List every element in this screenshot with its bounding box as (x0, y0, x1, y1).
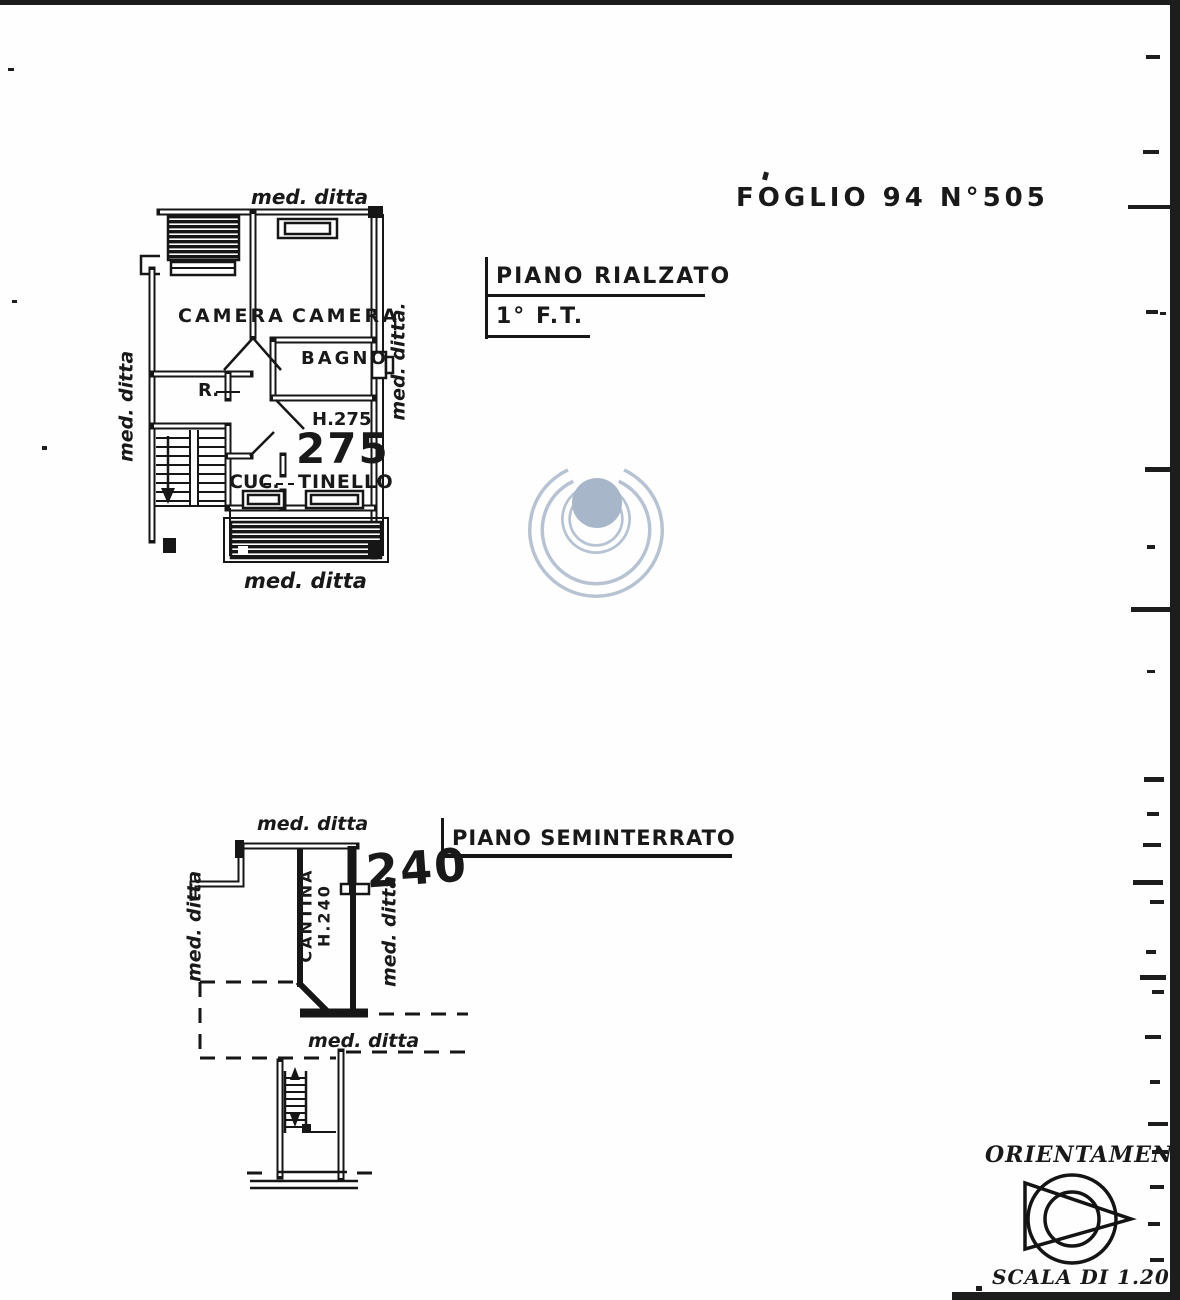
med-ditta-left-label: med. ditta (117, 346, 138, 466)
scanned-floor-plan-page: FOGLIO 94 N°505 PIANO RIALZATO 1° F.T. m… (0, 0, 1180, 1300)
height-value-275: 275 (296, 426, 390, 472)
cantina-name: CANTINA (297, 856, 315, 976)
watermark-ball (572, 478, 622, 528)
cantina-height: H.240 (315, 856, 333, 976)
room-camera-right-label: CAMERA (292, 306, 400, 327)
room-bagno-label: BAGNO (301, 349, 389, 369)
orientation-title: ORIENTAMENTO (985, 1143, 1180, 1167)
med-ditta-top-label: med. ditta (251, 186, 368, 208)
med-ditta-right-label-2: med. ditta (380, 871, 401, 991)
room-camera-left-label: CAMERA (178, 306, 286, 327)
title-tick (485, 257, 488, 339)
orientation-compass-icon (1025, 1175, 1131, 1263)
plan-rialzato-drawing (141, 206, 393, 562)
title-underline (487, 294, 705, 297)
watermark-logo-icon (536, 476, 656, 590)
med-ditta-left-label-2: med. ditta (185, 866, 206, 986)
plan-rialzato-subtitle: 1° F.T. (496, 305, 584, 329)
room-ripostiglio-label: R. (198, 381, 219, 401)
subtitle-underline (487, 335, 590, 338)
scale-label: SCALA DI 1.200 (992, 1266, 1180, 1288)
plan-seminterrato-title: PIANO SEMINTERRATO (452, 827, 736, 850)
med-ditta-top-label-2: med. ditta (257, 814, 368, 835)
med-ditta-bottom-label: med. ditta (244, 570, 367, 593)
med-ditta-bottom-label-2: med. ditta (308, 1031, 419, 1052)
foglio-reference: FOGLIO 94 N°505 (736, 184, 1049, 213)
room-tinello-label: TINELLO (298, 472, 394, 493)
plan-rialzato-title: PIANO RIALZATO (496, 265, 731, 289)
room-cantina-label: CANTINA H.240 (297, 856, 332, 976)
room-cucina-label: CUC. (229, 472, 280, 493)
stair-arrow-up-icon (290, 1067, 300, 1080)
title-underline-2 (442, 854, 732, 858)
